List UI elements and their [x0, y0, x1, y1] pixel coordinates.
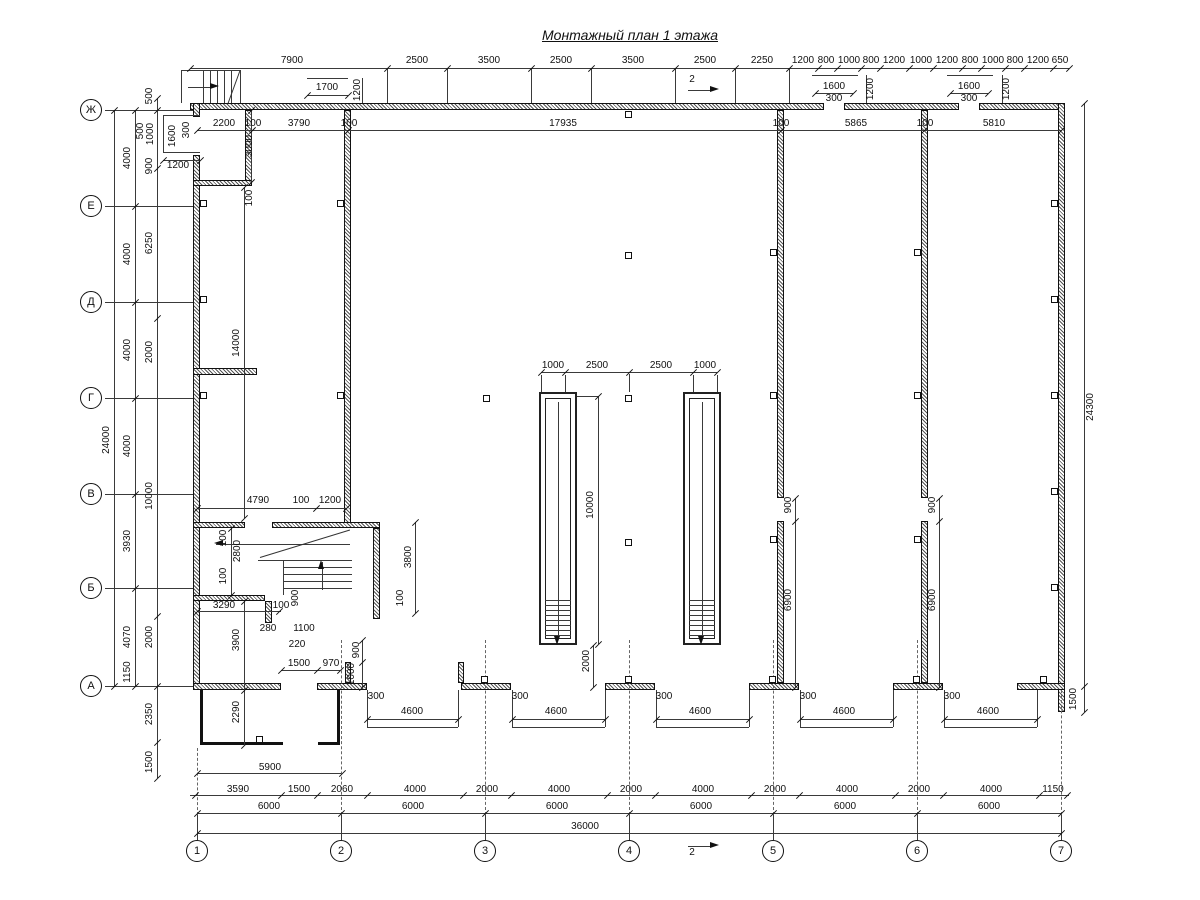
dim-label: 3790 [288, 119, 310, 129]
dimension-line [105, 206, 193, 207]
dim-label: 1600 [168, 125, 178, 147]
dim-label: 2000 [620, 785, 642, 795]
dim-label: 2500 [586, 361, 608, 371]
dim-label: 2500 [694, 56, 716, 66]
dim-label: 1000 [910, 56, 932, 66]
dimension-line [231, 70, 232, 103]
dimension-line [181, 70, 182, 103]
dim-label: 2500 [550, 56, 572, 66]
row-axis-bubble: Б [80, 577, 102, 599]
dim-label: 5900 [259, 763, 281, 773]
dimension-tick [154, 775, 161, 782]
arrowhead [698, 636, 704, 645]
partition-wall [200, 742, 283, 745]
dim-label: 1000 [146, 123, 156, 145]
dimension-line [163, 152, 200, 153]
dimension-line [197, 508, 346, 509]
dimension-line [244, 187, 245, 518]
dim-label: 6900 [784, 589, 794, 611]
dim-label: 36000 [571, 822, 599, 832]
column-mark [914, 392, 921, 399]
col-axis-bubble: 5 [762, 840, 784, 862]
dimension-line [688, 90, 710, 91]
arrowhead [554, 636, 560, 645]
wall-segment [193, 522, 245, 528]
dimension-line [105, 686, 193, 687]
dimension-line [157, 98, 158, 778]
dimension-line [485, 813, 486, 840]
dim-label: 2500 [650, 361, 672, 371]
dimension-tick [241, 515, 248, 522]
dim-label: 970 [323, 659, 340, 669]
dim-label: 10000 [586, 491, 596, 519]
dim-label: 1200 [167, 161, 189, 171]
column-mark [625, 111, 632, 118]
dim-label: 17935 [549, 119, 577, 129]
column-mark [625, 252, 632, 259]
dim-label: 300 [182, 122, 192, 139]
dimension-line [795, 498, 796, 687]
dim-label: 4600 [545, 707, 567, 717]
wall-segment [1058, 103, 1065, 712]
dim-label: 3290 [213, 601, 235, 611]
dimension-line [367, 727, 458, 728]
dimension-line [387, 68, 388, 103]
dim-label: 1200 [1002, 78, 1012, 100]
dimension-line [591, 68, 592, 103]
dim-label: 5865 [845, 119, 867, 129]
dim-label: 4070 [123, 626, 133, 648]
dimension-line [105, 110, 193, 111]
column-mark [769, 676, 776, 683]
dimension-line [240, 70, 241, 103]
dim-label: 650 [1052, 56, 1069, 66]
dim-label: 1200 [792, 56, 814, 66]
dim-label: 4000 [123, 435, 133, 457]
dim-label: 3590 [227, 785, 249, 795]
dimension-line [656, 719, 749, 720]
dim-label: 800 [863, 56, 880, 66]
column-mark [200, 200, 207, 207]
partition-wall [200, 690, 203, 745]
dim-label: 6000 [978, 802, 1000, 812]
dim-label: 2000 [582, 650, 592, 672]
dimension-line [947, 75, 993, 76]
dimension-line [188, 87, 210, 88]
dimension-line [939, 498, 940, 687]
row-axis-bubble: Г [80, 387, 102, 409]
dim-label: 900 [784, 497, 794, 514]
dimension-line [541, 375, 542, 392]
column-mark [200, 392, 207, 399]
dim-label: 24300 [1086, 393, 1096, 421]
dim-label: 800 [962, 56, 979, 66]
dimension-line [283, 574, 352, 575]
dimension-line [447, 68, 448, 103]
dim-label: 100 [917, 119, 934, 129]
dimension-line [812, 75, 858, 76]
dimension-line [565, 375, 566, 392]
dim-label: 1500 [288, 659, 310, 669]
dimension-line [105, 302, 193, 303]
dim-label: 1500 [145, 751, 155, 773]
dim-label: 24000 [102, 426, 112, 454]
dimension-line [593, 645, 594, 687]
dimension-line [283, 560, 284, 595]
column-mark [1051, 584, 1058, 591]
dimension-line [307, 95, 348, 96]
dim-label: 1000 [838, 56, 860, 66]
dimension-line [458, 690, 459, 727]
dim-label: 2 [689, 75, 695, 85]
row-axis-bubble: Е [80, 195, 102, 217]
arrowhead [214, 540, 223, 546]
dim-label: 4600 [977, 707, 999, 717]
dimension-line [283, 581, 352, 582]
dimension-line [944, 727, 1037, 728]
dim-label: 300 [961, 94, 978, 104]
dimension-tick [850, 90, 857, 97]
dimension-line [203, 70, 204, 103]
col-axis-bubble: 2 [330, 840, 352, 862]
column-mark [1040, 676, 1047, 683]
row-axis-bubble: В [80, 483, 102, 505]
dimension-line [1061, 813, 1062, 840]
dimension-line [944, 719, 1037, 720]
dim-label: 4600 [401, 707, 423, 717]
column-mark [770, 392, 777, 399]
dim-label: 1200 [866, 78, 876, 100]
dimension-line [917, 813, 918, 840]
dimension-line [197, 130, 1061, 131]
dimension-line [577, 396, 598, 397]
dim-label: 2000 [908, 785, 930, 795]
dim-label: 2060 [331, 785, 353, 795]
dim-label: 7900 [281, 56, 303, 66]
dimension-line [717, 375, 718, 392]
column-mark [1051, 296, 1058, 303]
dim-label: 1500 [288, 785, 310, 795]
dimension-line [789, 68, 790, 103]
col-axis-bubble: 1 [186, 840, 208, 862]
dim-label: 6000 [834, 802, 856, 812]
dimension-line [244, 690, 245, 745]
dim-label: 2250 [751, 56, 773, 66]
dimension-line [367, 719, 458, 720]
dim-label: 6000 [546, 802, 568, 812]
dim-label: 4600 [689, 707, 711, 717]
dim-label: 900 [291, 590, 301, 607]
dim-label: 4000 [836, 785, 858, 795]
dim-label: 3930 [123, 530, 133, 552]
wall-segment [190, 103, 824, 110]
dimension-line [258, 560, 352, 561]
dimension-tick [1081, 709, 1088, 716]
col-axis-bubble: 4 [618, 840, 640, 862]
dimension-line [341, 813, 342, 840]
dim-label: 100 [396, 590, 406, 607]
dim-label: 1000 [982, 56, 1004, 66]
dim-label: 1000 [694, 361, 716, 371]
dim-label: 900 [352, 642, 362, 659]
plan-title: Монтажный план 1 этажа [542, 27, 718, 43]
dim-label: 2000 [145, 626, 155, 648]
column-mark [914, 536, 921, 543]
dim-label: 4000 [404, 785, 426, 795]
dim-label: 1150 [1042, 785, 1064, 795]
dim-label: 4000 [123, 339, 133, 361]
dim-label: 300 [512, 692, 529, 702]
dimension-line [629, 374, 630, 392]
dimension-line [605, 690, 606, 727]
wall-segment [461, 683, 511, 690]
dim-label: 300 [800, 692, 817, 702]
dim-label: 100 [245, 119, 262, 129]
arrowhead [710, 842, 719, 848]
dim-label: 4000 [123, 243, 133, 265]
wall-segment [193, 683, 281, 690]
dim-label: 100 [219, 568, 229, 585]
dim-label: 14000 [232, 329, 242, 357]
column-mark [337, 392, 344, 399]
wall-segment [272, 522, 380, 528]
dimension-line [735, 68, 736, 103]
dim-label: 900 [145, 158, 155, 175]
dim-label: 1200 [353, 79, 363, 101]
column-mark [625, 676, 632, 683]
column-mark [914, 249, 921, 256]
dim-label: 1600 [958, 82, 980, 92]
wall-segment [1017, 683, 1065, 690]
dim-label: 4000 [980, 785, 1002, 795]
dimension-line [197, 611, 281, 612]
col-axis-bubble: 7 [1050, 840, 1072, 862]
dimension-tick [1064, 792, 1071, 799]
dimension-line [281, 670, 340, 671]
column-mark [913, 676, 920, 683]
dim-label: 2290 [232, 701, 242, 723]
dimension-line [598, 396, 599, 644]
column-mark [770, 249, 777, 256]
dim-label: 4000 [548, 785, 570, 795]
dimension-line [773, 813, 774, 840]
dimension-line [749, 690, 750, 727]
dimension-line [114, 110, 115, 686]
dim-label: 1700 [316, 83, 338, 93]
dimension-line [415, 522, 416, 613]
dim-label: 2000 [764, 785, 786, 795]
dimension-line [800, 719, 893, 720]
dimension-line [163, 115, 164, 152]
wall-segment [344, 110, 351, 528]
col-axis-bubble: 6 [906, 840, 928, 862]
column-mark [481, 676, 488, 683]
dimension-line [244, 601, 245, 690]
dimension-line [197, 773, 342, 774]
dim-label: 800 [1007, 56, 1024, 66]
dim-label: 6900 [928, 589, 938, 611]
dim-label: 2000 [476, 785, 498, 795]
dim-label: 4790 [247, 496, 269, 506]
dim-label: 100 [273, 601, 290, 611]
dimension-line [558, 402, 559, 638]
dimension-tick [1066, 65, 1073, 72]
dim-label: 4000 [123, 147, 133, 169]
dim-label: 3500 [478, 56, 500, 66]
dimension-tick [412, 610, 419, 617]
dim-label: 1200 [883, 56, 905, 66]
dim-label: 1200 [936, 56, 958, 66]
dim-label: 220 [289, 640, 306, 650]
arrowhead [318, 560, 324, 569]
wall-segment [265, 601, 272, 623]
dimension-line [675, 68, 676, 103]
dim-label: 1100 [293, 624, 315, 634]
dim-label: 1500 [1069, 688, 1079, 710]
dim-label: 2500 [406, 56, 428, 66]
dimension-line [629, 813, 630, 840]
row-axis-bubble: Ж [80, 99, 102, 121]
wall-segment [777, 110, 784, 498]
dim-label: 1600 [823, 82, 845, 92]
wall-segment [458, 662, 464, 683]
column-mark [625, 395, 632, 402]
column-mark [337, 200, 344, 207]
row-axis-bubble: А [80, 675, 102, 697]
dimension-line [190, 68, 1069, 69]
wall-segment [605, 683, 655, 690]
dimension-line [800, 727, 893, 728]
arrowhead [210, 83, 219, 89]
dimension-line [656, 727, 749, 728]
dimension-tick [345, 92, 352, 99]
grid-centerline [197, 748, 198, 815]
dimension-line [163, 115, 200, 116]
col-axis-bubble: 3 [474, 840, 496, 862]
dim-label: 3500 [622, 56, 644, 66]
dimension-line [512, 727, 605, 728]
dim-label: 6000 [402, 802, 424, 812]
dim-label: 2350 [145, 703, 155, 725]
dimension-line [531, 68, 532, 103]
dim-label: 2200 [213, 119, 235, 129]
row-axis-bubble: Д [80, 291, 102, 313]
dim-label: 100 [245, 190, 255, 207]
dim-label: 3000 [245, 135, 255, 157]
dim-label: 6000 [690, 802, 712, 812]
dimension-line [197, 813, 198, 840]
dim-label: 10000 [145, 482, 155, 510]
dimension-line [224, 70, 225, 103]
dimension-line [307, 78, 348, 79]
dim-label: 100 [341, 119, 358, 129]
column-mark [1051, 392, 1058, 399]
dim-label: 300 [944, 692, 961, 702]
dim-label: 280 [260, 624, 277, 634]
dim-label: 500 [145, 88, 155, 105]
stair-break-line [228, 70, 241, 103]
dim-label: 300 [656, 692, 673, 702]
column-mark [256, 736, 263, 743]
dim-label: 3800 [404, 546, 414, 568]
wall-segment [844, 103, 959, 110]
dim-label: 2 [689, 848, 695, 858]
dim-label: 900 [928, 497, 938, 514]
dim-label: 2000 [145, 341, 155, 363]
dimension-line [105, 588, 193, 589]
dimension-line [702, 402, 703, 638]
dim-label: 4000 [692, 785, 714, 795]
column-mark [483, 395, 490, 402]
dim-label: 1000 [347, 663, 357, 685]
partition-wall [337, 690, 340, 745]
dim-label: 800 [818, 56, 835, 66]
wall-segment [373, 528, 380, 619]
dim-label: 5810 [983, 119, 1005, 129]
dim-label: 1150 [123, 661, 133, 683]
dimension-line [105, 398, 193, 399]
dim-label: 4600 [833, 707, 855, 717]
dimension-tick [590, 684, 597, 691]
column-mark [200, 296, 207, 303]
dimension-line [1037, 690, 1038, 727]
wall-segment [979, 103, 1065, 110]
dim-label: 1000 [542, 361, 564, 371]
dim-label: 6000 [258, 802, 280, 812]
wall-segment [921, 110, 928, 498]
floor-plan: Монтажный план 1 этажа 79002500350025003… [0, 0, 1200, 900]
arrowhead [710, 86, 719, 92]
column-mark [770, 536, 777, 543]
dimension-tick [985, 90, 992, 97]
dimension-line [693, 375, 694, 392]
wall-segment [193, 368, 257, 375]
dim-label: 1200 [1027, 56, 1049, 66]
dimension-line [893, 690, 894, 727]
dim-label: 100 [773, 119, 790, 129]
dim-label: 300 [826, 94, 843, 104]
dim-label: 2800 [233, 540, 243, 562]
dim-label: 100 [293, 496, 310, 506]
column-mark [1051, 488, 1058, 495]
wall-segment [193, 180, 252, 186]
dim-label: 1200 [319, 496, 341, 506]
dimension-line [512, 719, 605, 720]
dim-label: 300 [368, 692, 385, 702]
grid-centerline [1061, 690, 1062, 815]
dim-label: 6250 [145, 232, 155, 254]
column-mark [1051, 200, 1058, 207]
dim-label: 3900 [232, 629, 242, 651]
column-mark [625, 539, 632, 546]
